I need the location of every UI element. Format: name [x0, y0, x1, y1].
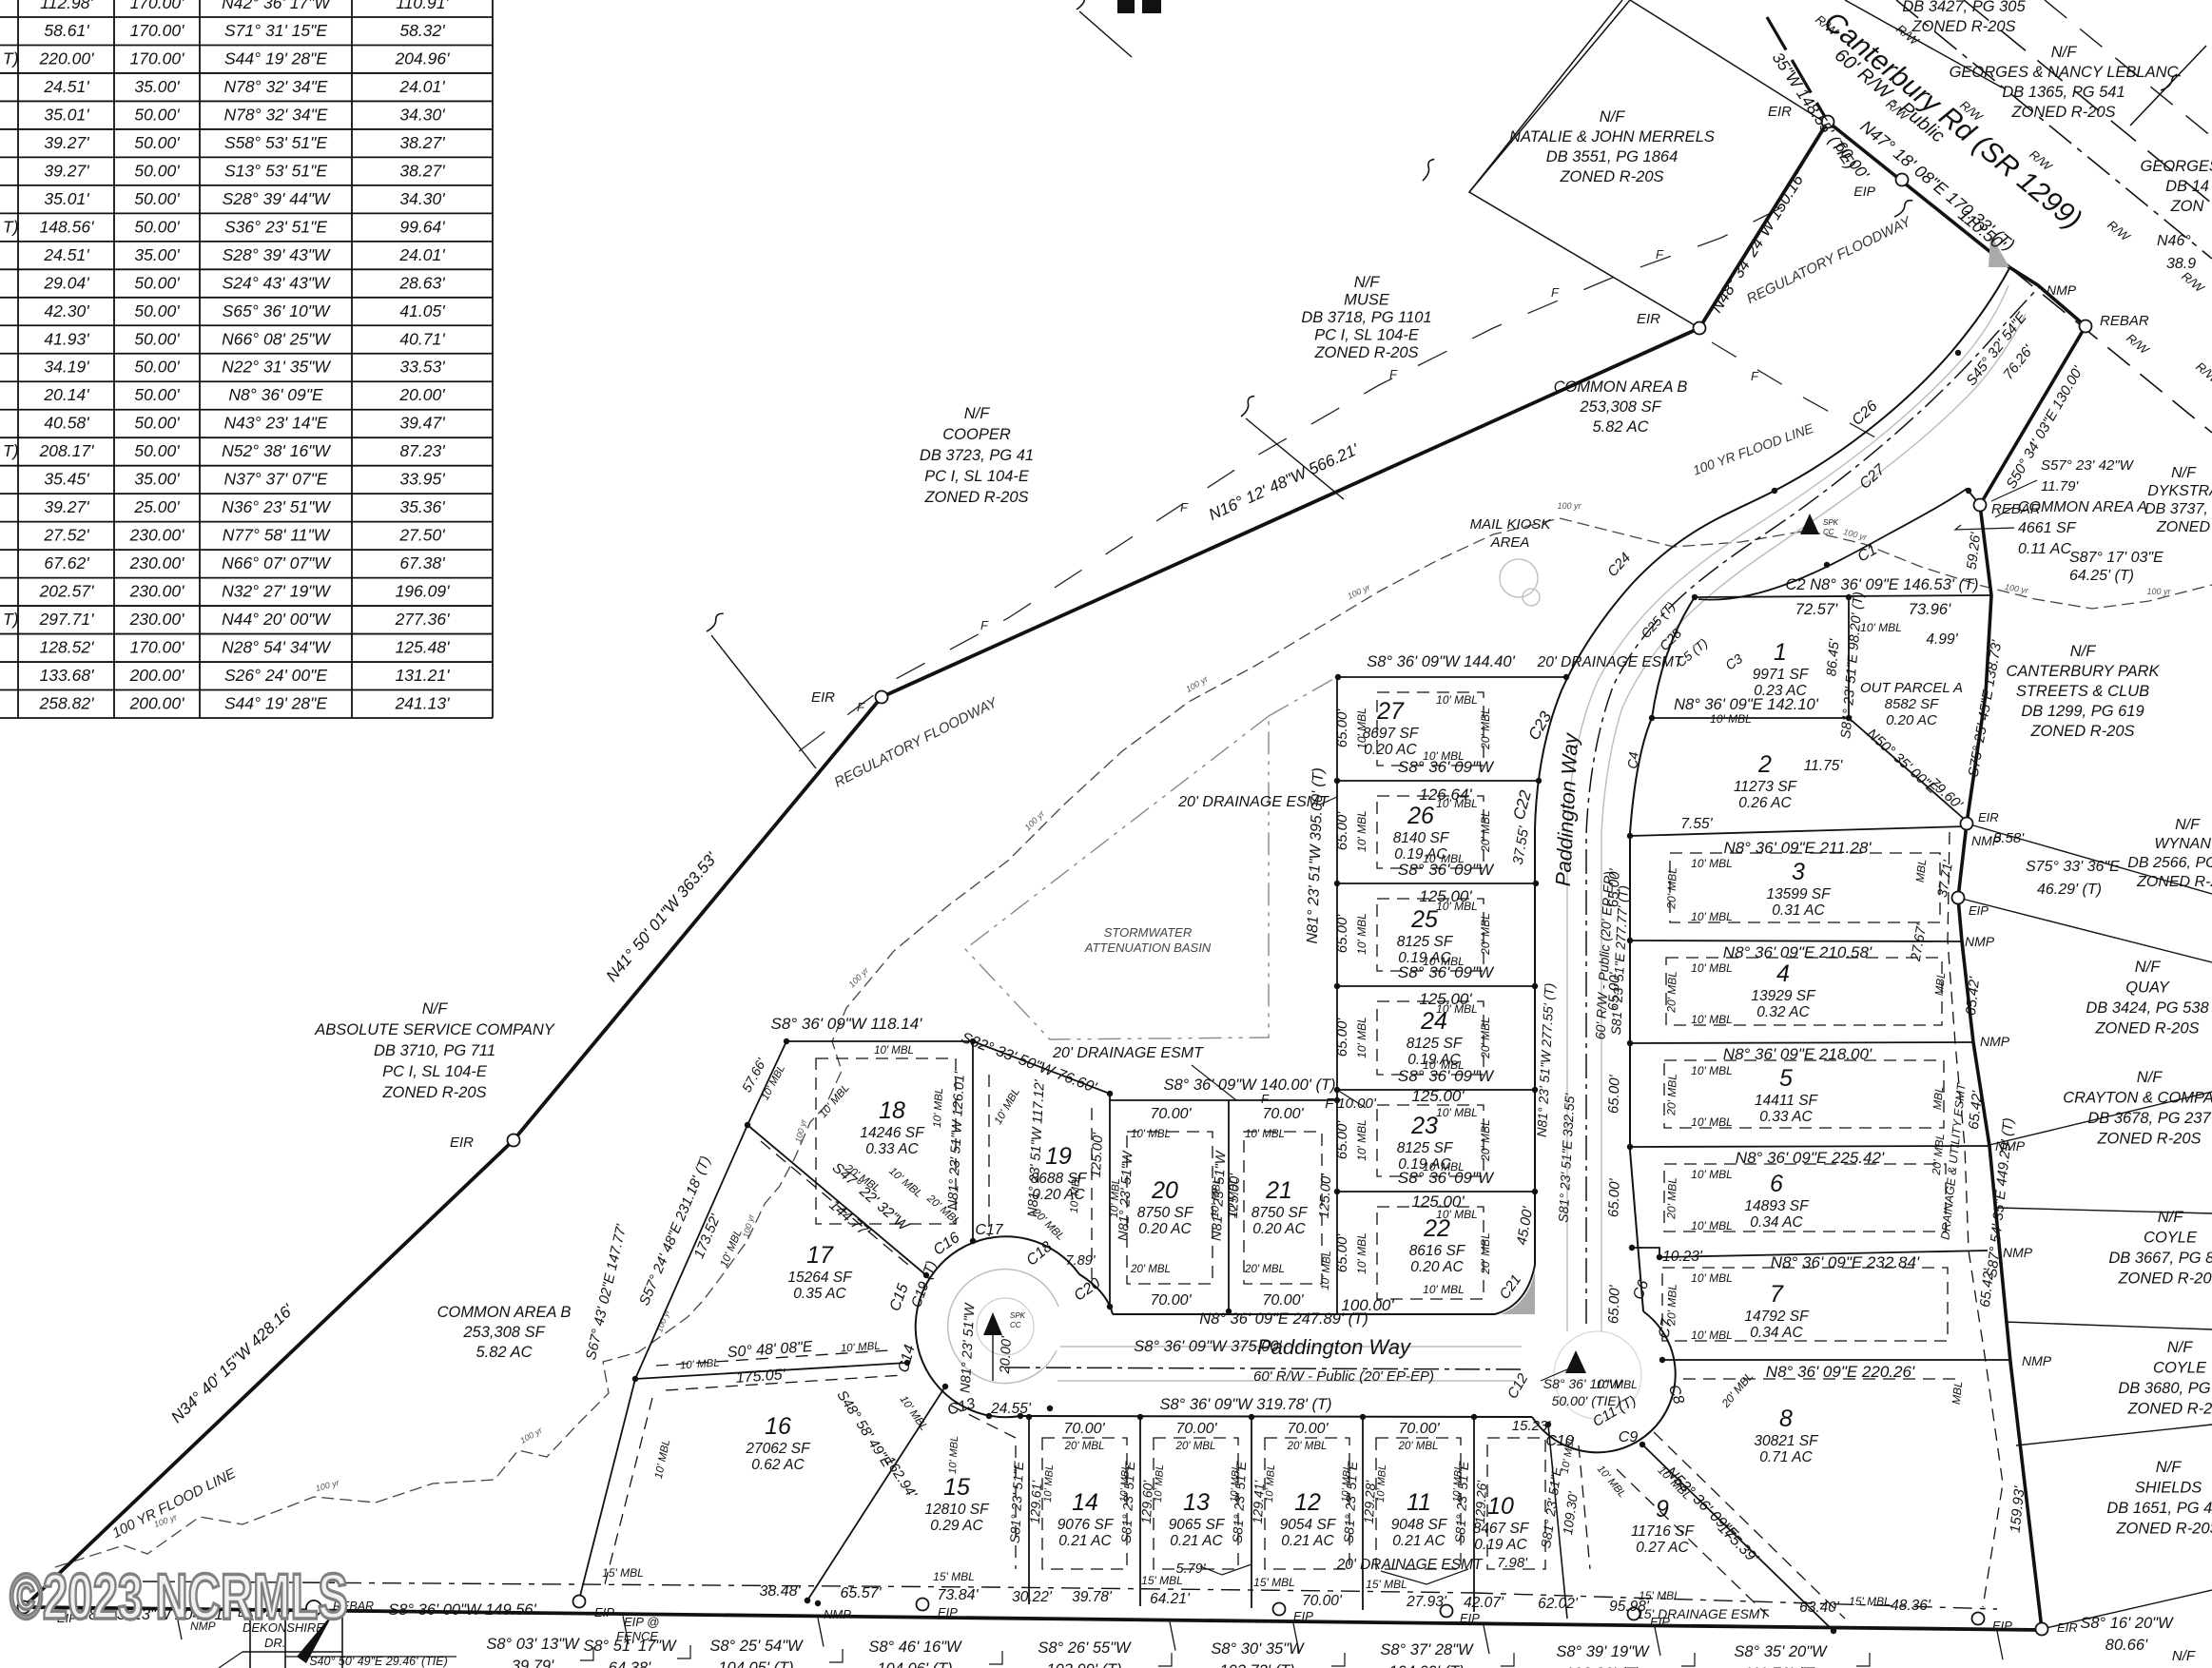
svg-text:20: 20 — [1151, 1177, 1178, 1204]
svg-text:EIP @: EIP @ — [624, 1615, 659, 1629]
svg-text:S8° 51' 17"W: S8° 51' 17"W — [583, 1638, 677, 1655]
svg-text:25.00': 25.00' — [133, 497, 180, 516]
svg-text:20' DRAINAGE ESMT: 20' DRAINAGE ESMT — [1177, 794, 1329, 810]
svg-text:50.00': 50.00' — [134, 414, 180, 433]
svg-text:58.32': 58.32' — [399, 21, 445, 40]
svg-text:10' MBL: 10' MBL — [1691, 857, 1733, 870]
svg-text:27062 SF: 27062 SF — [745, 1441, 811, 1457]
svg-text:12810 SF: 12810 SF — [924, 1502, 990, 1518]
svg-text:DB 1651, PG 436: DB 1651, PG 436 — [2106, 1500, 2212, 1517]
svg-text:20' MBL: 20' MBL — [1064, 1441, 1105, 1452]
svg-text:103.72' (T): 103.72' (T) — [1219, 1662, 1294, 1668]
svg-text:10' MBL: 10' MBL — [1436, 1106, 1478, 1119]
svg-text:10' MBL: 10' MBL — [1436, 900, 1478, 913]
svg-text:208.17': 208.17' — [39, 441, 95, 460]
svg-text:7.98': 7.98' — [1497, 1555, 1528, 1571]
svg-text:41.05': 41.05' — [399, 301, 445, 320]
svg-text:10' MBL: 10' MBL — [1691, 1115, 1733, 1129]
svg-text:COYLE: COYLE — [2144, 1230, 2198, 1247]
svg-text:15' MBL: 15' MBL — [1253, 1576, 1295, 1589]
svg-text:NMP: NMP — [1995, 1138, 2026, 1154]
svg-text:SPK: SPK — [1823, 518, 1839, 527]
svg-text:DB 14: DB 14 — [2165, 178, 2209, 195]
svg-text:70.00': 70.00' — [1150, 1292, 1192, 1309]
svg-text:STREETS & CLUB: STREETS & CLUB — [2016, 683, 2149, 700]
svg-text:20.14': 20.14' — [43, 385, 89, 404]
svg-text:DB 3427, PG 305: DB 3427, PG 305 — [1902, 0, 2026, 15]
svg-text:23: 23 — [1410, 1113, 1438, 1139]
svg-text:ATTENUATION BASIN: ATTENUATION BASIN — [1084, 941, 1212, 955]
svg-text:128.52': 128.52' — [40, 638, 95, 657]
svg-text:N/F: N/F — [2171, 465, 2197, 481]
svg-text:277.36': 277.36' — [395, 610, 451, 629]
svg-text:50.00': 50.00' — [134, 105, 180, 124]
svg-text:N32° 27' 19"W: N32° 27' 19"W — [222, 582, 331, 601]
svg-text:EIR: EIR — [1637, 311, 1660, 327]
svg-text:38.9: 38.9 — [2166, 256, 2196, 272]
svg-text:F: F — [1751, 369, 1759, 383]
svg-text:50.00': 50.00' — [134, 329, 180, 348]
svg-text:CC: CC — [1010, 1321, 1021, 1329]
svg-text:10' MBL: 10' MBL — [1691, 1329, 1733, 1342]
svg-text:ZONED R-20S: ZONED R-20S — [2094, 1020, 2199, 1038]
svg-text:EIR: EIR — [1768, 104, 1792, 120]
svg-text:9971 SF: 9971 SF — [1753, 667, 1810, 683]
svg-text:N78° 32' 34"E: N78° 32' 34"E — [224, 77, 328, 96]
svg-text:S8° 46' 16"W: S8° 46' 16"W — [868, 1639, 962, 1656]
svg-text:4: 4 — [1776, 960, 1790, 987]
svg-text:104.05' (T): 104.05' (T) — [718, 1659, 793, 1668]
svg-text:0.19 AC: 0.19 AC — [1474, 1537, 1527, 1553]
svg-text:S57° 23' 42"W: S57° 23' 42"W — [2041, 457, 2135, 474]
svg-text:S13° 53' 51"E: S13° 53' 51"E — [224, 161, 327, 180]
svg-text:10' MBL: 10' MBL — [1227, 1178, 1240, 1218]
svg-text:27.50': 27.50' — [398, 526, 445, 545]
svg-text:10' MBL: 10' MBL — [1320, 1251, 1333, 1290]
svg-text:10' MBL: 10' MBL — [1691, 961, 1733, 975]
svg-text:204.96': 204.96' — [395, 48, 451, 68]
svg-text:39.78': 39.78' — [1072, 1589, 1113, 1605]
svg-text:N8° 36' 09"E 247.89' (T): N8° 36' 09"E 247.89' (T) — [1199, 1310, 1368, 1328]
svg-text:N66° 08' 25"W: N66° 08' 25"W — [222, 329, 331, 348]
svg-text:10' MBL: 10' MBL — [1264, 1464, 1277, 1503]
svg-text:F: F — [857, 700, 865, 714]
svg-text:70.00': 70.00' — [1063, 1421, 1105, 1437]
svg-text:29.04': 29.04' — [43, 273, 89, 292]
svg-text:10' MBL: 10' MBL — [1691, 1219, 1733, 1232]
svg-text:10' MBL: 10' MBL — [1423, 852, 1465, 865]
svg-text:MUSE: MUSE — [1344, 292, 1390, 309]
svg-text:0.20 AC: 0.20 AC — [1252, 1221, 1306, 1237]
svg-text:0.33 AC: 0.33 AC — [1759, 1109, 1813, 1125]
svg-text:S87° 17' 03"E: S87° 17' 03"E — [2069, 550, 2163, 566]
svg-text:104.09' (T): 104.09' (T) — [1388, 1663, 1464, 1668]
svg-text:7: 7 — [1770, 1281, 1784, 1308]
svg-text:170.00': 170.00' — [130, 0, 185, 12]
svg-text:PC I, SL 104-E: PC I, SL 104-E — [924, 468, 1030, 485]
svg-text:F 10.00': F 10.00' — [1325, 1096, 1377, 1112]
svg-text:11716 SF: 11716 SF — [1631, 1523, 1696, 1540]
svg-text:35.36': 35.36' — [399, 497, 445, 516]
svg-text:15264 SF: 15264 SF — [787, 1270, 853, 1286]
svg-text:129.26': 129.26' — [1472, 1479, 1489, 1524]
svg-text:S75° 33' 36"E: S75° 33' 36"E — [2026, 859, 2120, 875]
svg-text:8125 SF: 8125 SF — [1397, 1140, 1454, 1156]
svg-text:104.06' (T): 104.06' (T) — [877, 1660, 952, 1668]
svg-text:ZONED R-20S: ZONED R-20S — [2136, 874, 2212, 890]
svg-text:10.23': 10.23' — [1662, 1249, 1703, 1265]
svg-text:0.21 AC: 0.21 AC — [1058, 1533, 1112, 1549]
svg-text:N8° 36' 09"E 142.10': N8° 36' 09"E 142.10' — [1674, 696, 1819, 713]
svg-text:0.71 AC: 0.71 AC — [1759, 1449, 1813, 1465]
svg-text:10' MBL: 10' MBL — [932, 1088, 945, 1128]
svg-text:COMMON AREA A: COMMON AREA A — [2018, 499, 2147, 515]
svg-text:0.20 AC: 0.20 AC — [1886, 712, 1937, 728]
svg-text:70.00': 70.00' — [1150, 1106, 1192, 1122]
svg-text:N/F: N/F — [2051, 44, 2078, 61]
svg-text:0.21 AC: 0.21 AC — [1281, 1533, 1334, 1549]
svg-text:131.21': 131.21' — [396, 666, 451, 685]
svg-text:80.66': 80.66' — [2105, 1637, 2148, 1654]
svg-text:62.02': 62.02' — [1538, 1596, 1579, 1612]
svg-text:MBL: MBL — [1913, 859, 1930, 883]
svg-text:87.23': 87.23' — [399, 441, 445, 460]
svg-text:20' MBL: 20' MBL — [1244, 1264, 1285, 1275]
svg-text:DB 3678, PG 237: DB 3678, PG 237 — [2087, 1110, 2211, 1127]
svg-text:EIR: EIR — [811, 689, 835, 706]
svg-text:NMP: NMP — [1965, 934, 1995, 949]
svg-text:7.55': 7.55' — [1680, 816, 1713, 832]
svg-text:0.21 AC: 0.21 AC — [1392, 1533, 1446, 1549]
svg-text:100 yr: 100 yr — [1557, 501, 1581, 511]
svg-text:10' MBL: 10' MBL — [1375, 1464, 1388, 1503]
svg-text:S8° 39' 19"W: S8° 39' 19"W — [1556, 1643, 1650, 1660]
svg-text:COMMON AREA B: COMMON AREA B — [1554, 378, 1688, 396]
svg-text:20' DRAINAGE ESMT: 20' DRAINAGE ESMT — [1052, 1045, 1204, 1061]
svg-text:70.00': 70.00' — [1175, 1421, 1217, 1437]
svg-text:230.00': 230.00' — [129, 582, 185, 601]
svg-text:COYLE: COYLE — [2153, 1360, 2207, 1377]
svg-text:10' MBL: 10' MBL — [1109, 1178, 1122, 1218]
svg-text:DB 1299, PG 619: DB 1299, PG 619 — [2021, 703, 2144, 720]
svg-text:EIP: EIP — [1992, 1619, 2012, 1633]
svg-text:10' MBL: 10' MBL — [1355, 1232, 1368, 1274]
svg-text:DB 3737, P: DB 3737, P — [2144, 501, 2212, 517]
svg-text:NMP: NMP — [2003, 1245, 2033, 1260]
svg-text:0.26 AC: 0.26 AC — [1738, 795, 1792, 811]
svg-text:N/F: N/F — [2070, 643, 2097, 660]
svg-text:112.98': 112.98' — [40, 0, 93, 12]
svg-text:DB 3424, PG 538: DB 3424, PG 538 — [2086, 999, 2209, 1017]
svg-text:64.25' (T): 64.25' (T) — [2069, 568, 2134, 584]
svg-text:220.00': 220.00' — [39, 48, 95, 68]
svg-text:N44° 20' 00"W: N44° 20' 00"W — [222, 610, 331, 629]
svg-text:48.36': 48.36' — [1891, 1598, 1931, 1614]
svg-text:39.47': 39.47' — [399, 414, 445, 433]
svg-text:70.00': 70.00' — [1398, 1421, 1440, 1437]
svg-text:DYKSTRA: DYKSTRA — [2147, 483, 2212, 499]
svg-text:10' MBL: 10' MBL — [1423, 1160, 1465, 1173]
svg-text:9054 SF: 9054 SF — [1280, 1517, 1337, 1533]
svg-text:8750 SF: 8750 SF — [1137, 1205, 1194, 1221]
svg-text:10' MBL: 10' MBL — [1710, 712, 1752, 726]
svg-text:13599 SF: 13599 SF — [1766, 886, 1832, 902]
svg-text:ZONED R-20S: ZONED R-20S — [2010, 104, 2115, 121]
svg-text:241.13': 241.13' — [395, 694, 451, 713]
svg-text:15' MBL: 15' MBL — [602, 1566, 644, 1580]
svg-text:50.00': 50.00' — [134, 189, 180, 208]
svg-text:10' MBL: 10' MBL — [1355, 1017, 1368, 1058]
svg-text:EIR: EIR — [2057, 1620, 2078, 1635]
svg-text:DB 3680, PG 692: DB 3680, PG 692 — [2118, 1380, 2212, 1397]
svg-text:50.00': 50.00' — [134, 358, 180, 377]
svg-text:24.01': 24.01' — [398, 77, 445, 96]
svg-text:DB 3710, PG 711: DB 3710, PG 711 — [374, 1042, 495, 1059]
svg-text:46.29' (T): 46.29' (T) — [2037, 882, 2102, 898]
svg-text:73.84': 73.84' — [937, 1587, 979, 1603]
svg-text:13: 13 — [1183, 1489, 1210, 1516]
svg-text:24.55': 24.55' — [990, 1401, 1032, 1417]
svg-text:8750 SF: 8750 SF — [1252, 1205, 1309, 1221]
svg-text:NMP: NMP — [824, 1607, 851, 1621]
svg-text:N36° 23' 51"W: N36° 23' 51"W — [222, 497, 331, 516]
svg-text:7.89': 7.89' — [1066, 1253, 1096, 1269]
svg-text:133.68': 133.68' — [40, 666, 95, 685]
svg-text:S24° 43' 43"W: S24° 43' 43"W — [223, 273, 331, 292]
svg-text:0.31 AC: 0.31 AC — [1772, 902, 1825, 919]
svg-text:ZONED R-20S: ZONED R-20S — [2096, 1131, 2201, 1148]
svg-text:50.00': 50.00' — [134, 133, 180, 152]
svg-text:OUT PARCEL A: OUT PARCEL A — [1860, 680, 1963, 696]
svg-text:EIP: EIP — [938, 1605, 958, 1620]
svg-text:65.00': 65.00' — [1605, 1284, 1622, 1324]
svg-text:20' MBL: 20' MBL — [1664, 1177, 1679, 1220]
svg-text:35.01': 35.01' — [44, 189, 89, 208]
svg-text:EIP: EIP — [1853, 184, 1875, 199]
svg-text:10' MBL: 10' MBL — [1436, 1208, 1478, 1221]
svg-text:20' MBL: 20' MBL — [1479, 1119, 1492, 1162]
svg-text:ZON: ZON — [2170, 198, 2204, 215]
svg-text:25: 25 — [1410, 906, 1438, 933]
svg-text:95.98': 95.98' — [1609, 1599, 1650, 1615]
svg-text:20.00': 20.00' — [398, 385, 445, 404]
svg-text:9065 SF: 9065 SF — [1169, 1517, 1226, 1533]
svg-text:DB 3551, PG 1864: DB 3551, PG 1864 — [1546, 148, 1678, 165]
svg-text:ZONED R-20S: ZONED R-20S — [2029, 723, 2134, 740]
svg-text:ABSOLUTE SERVICE COMPANY: ABSOLUTE SERVICE COMPANY — [314, 1021, 555, 1038]
svg-text:EIP: EIP — [1460, 1611, 1480, 1625]
svg-text:21: 21 — [1265, 1177, 1292, 1204]
svg-text:18: 18 — [879, 1097, 905, 1124]
svg-text:41.93': 41.93' — [44, 329, 89, 348]
svg-text:297.71': 297.71' — [39, 610, 95, 629]
svg-text:70.00': 70.00' — [1262, 1106, 1304, 1122]
svg-text:15' MBL: 15' MBL — [1366, 1578, 1407, 1591]
svg-text:F: F — [1656, 247, 1664, 262]
svg-text:N8° 36' 09"E: N8° 36' 09"E — [228, 385, 323, 404]
svg-text:C2 N8° 36' 09"E 146.53' (T): C2 N8° 36' 09"E 146.53' (T) — [1785, 576, 1978, 593]
svg-text:8125 SF: 8125 SF — [1407, 1036, 1464, 1052]
svg-text:40.71': 40.71' — [399, 329, 445, 348]
svg-text:EIR: EIR — [450, 1135, 474, 1151]
svg-text:20' MBL: 20' MBL — [1479, 913, 1492, 956]
svg-text:EIP: EIP — [1293, 1609, 1313, 1623]
svg-text:39.27': 39.27' — [44, 161, 89, 180]
svg-text:34.19': 34.19' — [44, 358, 89, 377]
svg-text:230.00': 230.00' — [129, 553, 185, 572]
svg-text:F: F — [1261, 1092, 1270, 1106]
svg-text:N46°: N46° — [2157, 233, 2191, 249]
svg-text:N/F: N/F — [2167, 1339, 2194, 1356]
svg-text:148.56': 148.56' — [40, 217, 95, 236]
svg-text:N42° 36' 17"W: N42° 36' 17"W — [222, 0, 331, 12]
svg-text:S58° 53' 51"E: S58° 53' 51"E — [224, 133, 327, 152]
svg-text:C4: C4 — [1624, 751, 1641, 769]
svg-text:S28° 39' 43"W: S28° 39' 43"W — [223, 245, 331, 264]
svg-text:8125 SF: 8125 SF — [1397, 934, 1454, 950]
svg-text:COMMON AREA B: COMMON AREA B — [437, 1304, 572, 1321]
svg-text:N/F: N/F — [1600, 108, 1626, 126]
svg-text:14411 SF: 14411 SF — [1755, 1093, 1819, 1109]
svg-text:ZONED: ZONED — [2156, 519, 2210, 535]
svg-text:10' MBL: 10' MBL — [1355, 1119, 1368, 1161]
svg-text:230.00': 230.00' — [129, 526, 185, 545]
svg-text:4661 SF: 4661 SF — [2018, 520, 2077, 536]
svg-text:10' MBL: 10' MBL — [1691, 1013, 1733, 1026]
svg-text:N/F: N/F — [2158, 1209, 2184, 1226]
svg-text:200.00': 200.00' — [129, 694, 185, 713]
svg-text:28.63': 28.63' — [398, 273, 445, 292]
svg-text:40.58': 40.58' — [44, 414, 89, 433]
svg-text:10' MBL: 10' MBL — [1436, 693, 1478, 707]
svg-text:65.00': 65.00' — [1605, 867, 1622, 907]
svg-text:10' MBL: 10' MBL — [1423, 1058, 1465, 1072]
svg-text:T): T) — [3, 441, 19, 460]
svg-text:8616 SF: 8616 SF — [1409, 1243, 1466, 1259]
svg-text:10' MBL: 10' MBL — [1691, 1168, 1733, 1181]
svg-text:S8° 37' 28"W: S8° 37' 28"W — [1380, 1641, 1474, 1658]
svg-text:8.58': 8.58' — [1993, 830, 2025, 846]
svg-text:9076 SF: 9076 SF — [1057, 1517, 1115, 1533]
svg-text:CRAYTON & COMPANY: CRAYTON & COMPANY — [2063, 1090, 2212, 1107]
svg-text:72.57': 72.57' — [1795, 601, 1838, 618]
svg-text:0.29 AC: 0.29 AC — [930, 1518, 983, 1534]
svg-text:MBL: MBL — [1931, 1086, 1947, 1111]
svg-text:CC: CC — [1823, 528, 1834, 536]
svg-text:10' MBL: 10' MBL — [1860, 621, 1902, 634]
svg-text:S26° 24' 00"E: S26° 24' 00"E — [224, 666, 327, 685]
svg-text:©2023 NCRMLS: ©2023 NCRMLS — [10, 1561, 348, 1633]
svg-text:N66° 07' 07"W: N66° 07' 07"W — [222, 553, 331, 572]
svg-text:20' MBL: 20' MBL — [1479, 1232, 1492, 1275]
svg-text:38.48': 38.48' — [759, 1583, 801, 1600]
svg-text:SPK: SPK — [1010, 1311, 1026, 1320]
svg-text:N77° 58' 11"W: N77° 58' 11"W — [223, 526, 331, 545]
svg-text:S8° 36' 09"W 118.14': S8° 36' 09"W 118.14' — [771, 1015, 923, 1033]
svg-text:15.23': 15.23' — [1512, 1418, 1552, 1434]
svg-text:NMP: NMP — [2047, 282, 2077, 298]
svg-text:15' MBL: 15' MBL — [1141, 1574, 1183, 1587]
svg-text:24.01': 24.01' — [398, 245, 445, 264]
svg-text:253,308 SF: 253,308 SF — [1579, 398, 1661, 416]
svg-text:20' MBL: 20' MBL — [1479, 708, 1492, 750]
svg-text:0.27 AC: 0.27 AC — [1636, 1540, 1689, 1556]
svg-text:EIR: EIR — [1978, 810, 1999, 824]
svg-text:20.00': 20.00' — [998, 1335, 1015, 1375]
svg-text:39.79': 39.79' — [512, 1658, 554, 1668]
svg-text:1: 1 — [1774, 639, 1787, 666]
svg-text:N8° 36' 09"E 211.28': N8° 36' 09"E 211.28' — [1723, 839, 1872, 857]
svg-text:50.00': 50.00' — [134, 441, 180, 460]
svg-text:14893 SF: 14893 SF — [1744, 1198, 1810, 1214]
svg-text:N8° 36' 09"E 218.00': N8° 36' 09"E 218.00' — [1723, 1045, 1872, 1063]
svg-text:N8° 36' 09"E 210.58': N8° 36' 09"E 210.58' — [1723, 943, 1872, 961]
svg-text:10: 10 — [1487, 1493, 1514, 1520]
svg-text:15' MBL: 15' MBL — [933, 1570, 975, 1583]
svg-text:17: 17 — [806, 1242, 834, 1269]
svg-text:20' MBL: 20' MBL — [1664, 1074, 1679, 1116]
svg-text:0.32 AC: 0.32 AC — [1756, 1004, 1810, 1020]
svg-text:10' MBL: 10' MBL — [1691, 1271, 1733, 1285]
svg-text:65.00': 65.00' — [1334, 811, 1350, 851]
svg-text:15' MBL: 15' MBL — [1849, 1595, 1891, 1608]
svg-text:65.00': 65.00' — [1605, 1177, 1622, 1217]
svg-text:3: 3 — [1792, 859, 1805, 885]
svg-text:N8° 36' 09"E 232.84': N8° 36' 09"E 232.84' — [1771, 1253, 1920, 1271]
svg-text:64.21': 64.21' — [1150, 1591, 1191, 1607]
svg-text:50.00': 50.00' — [134, 217, 180, 236]
svg-text:33.95': 33.95' — [399, 470, 445, 489]
svg-text:14792 SF: 14792 SF — [1744, 1309, 1810, 1325]
svg-text:110.91': 110.91' — [396, 0, 449, 12]
svg-text:125.00': 125.00' — [1411, 1087, 1465, 1105]
svg-text:F: F — [980, 618, 989, 632]
svg-text:70.00': 70.00' — [1302, 1593, 1343, 1609]
svg-text:125.48': 125.48' — [396, 638, 451, 657]
svg-text:SHIELDS: SHIELDS — [2135, 1480, 2202, 1497]
svg-text:170.00': 170.00' — [130, 21, 185, 40]
svg-text:10' MBL: 10' MBL — [1423, 955, 1465, 968]
svg-text:253,308 SF: 253,308 SF — [462, 1324, 545, 1341]
svg-text:10' MBL: 10' MBL — [1355, 913, 1368, 955]
svg-text:20' MBL: 20' MBL — [1287, 1441, 1328, 1452]
svg-text:N37° 37' 07"E: N37° 37' 07"E — [224, 470, 328, 489]
svg-text:N/F: N/F — [422, 1000, 449, 1018]
svg-text:30821 SF: 30821 SF — [1754, 1433, 1819, 1449]
svg-text:N52° 38' 16"W: N52° 38' 16"W — [222, 441, 331, 460]
svg-text:30.22': 30.22' — [1012, 1589, 1053, 1605]
svg-text:F: F — [1389, 367, 1398, 381]
svg-text:65.57': 65.57' — [840, 1585, 882, 1601]
svg-text:10' MBL: 10' MBL — [1451, 1464, 1465, 1503]
svg-text:34.30': 34.30' — [399, 189, 445, 208]
svg-text:10' MBL: 10' MBL — [874, 1045, 914, 1057]
svg-text:6: 6 — [1770, 1171, 1783, 1197]
svg-text:0.20 AC: 0.20 AC — [1410, 1259, 1464, 1275]
svg-text:10' MBL: 10' MBL — [1131, 1129, 1171, 1140]
svg-text:ZONED R-20S: ZONED R-20S — [2117, 1270, 2212, 1288]
svg-text:10' MBL: 10' MBL — [1042, 1464, 1056, 1503]
svg-text:EIP: EIP — [1650, 1615, 1670, 1629]
svg-text:8140 SF: 8140 SF — [1393, 830, 1450, 846]
svg-text:0.33 AC: 0.33 AC — [865, 1141, 919, 1157]
svg-text:50.00': 50.00' — [134, 301, 180, 320]
svg-text:20' MBL: 20' MBL — [1130, 1264, 1171, 1275]
svg-text:99.64': 99.64' — [399, 217, 445, 236]
svg-text:0.11 AC: 0.11 AC — [2018, 541, 2071, 557]
svg-text:42.07': 42.07' — [1464, 1595, 1504, 1611]
svg-text:70.00': 70.00' — [1287, 1421, 1329, 1437]
